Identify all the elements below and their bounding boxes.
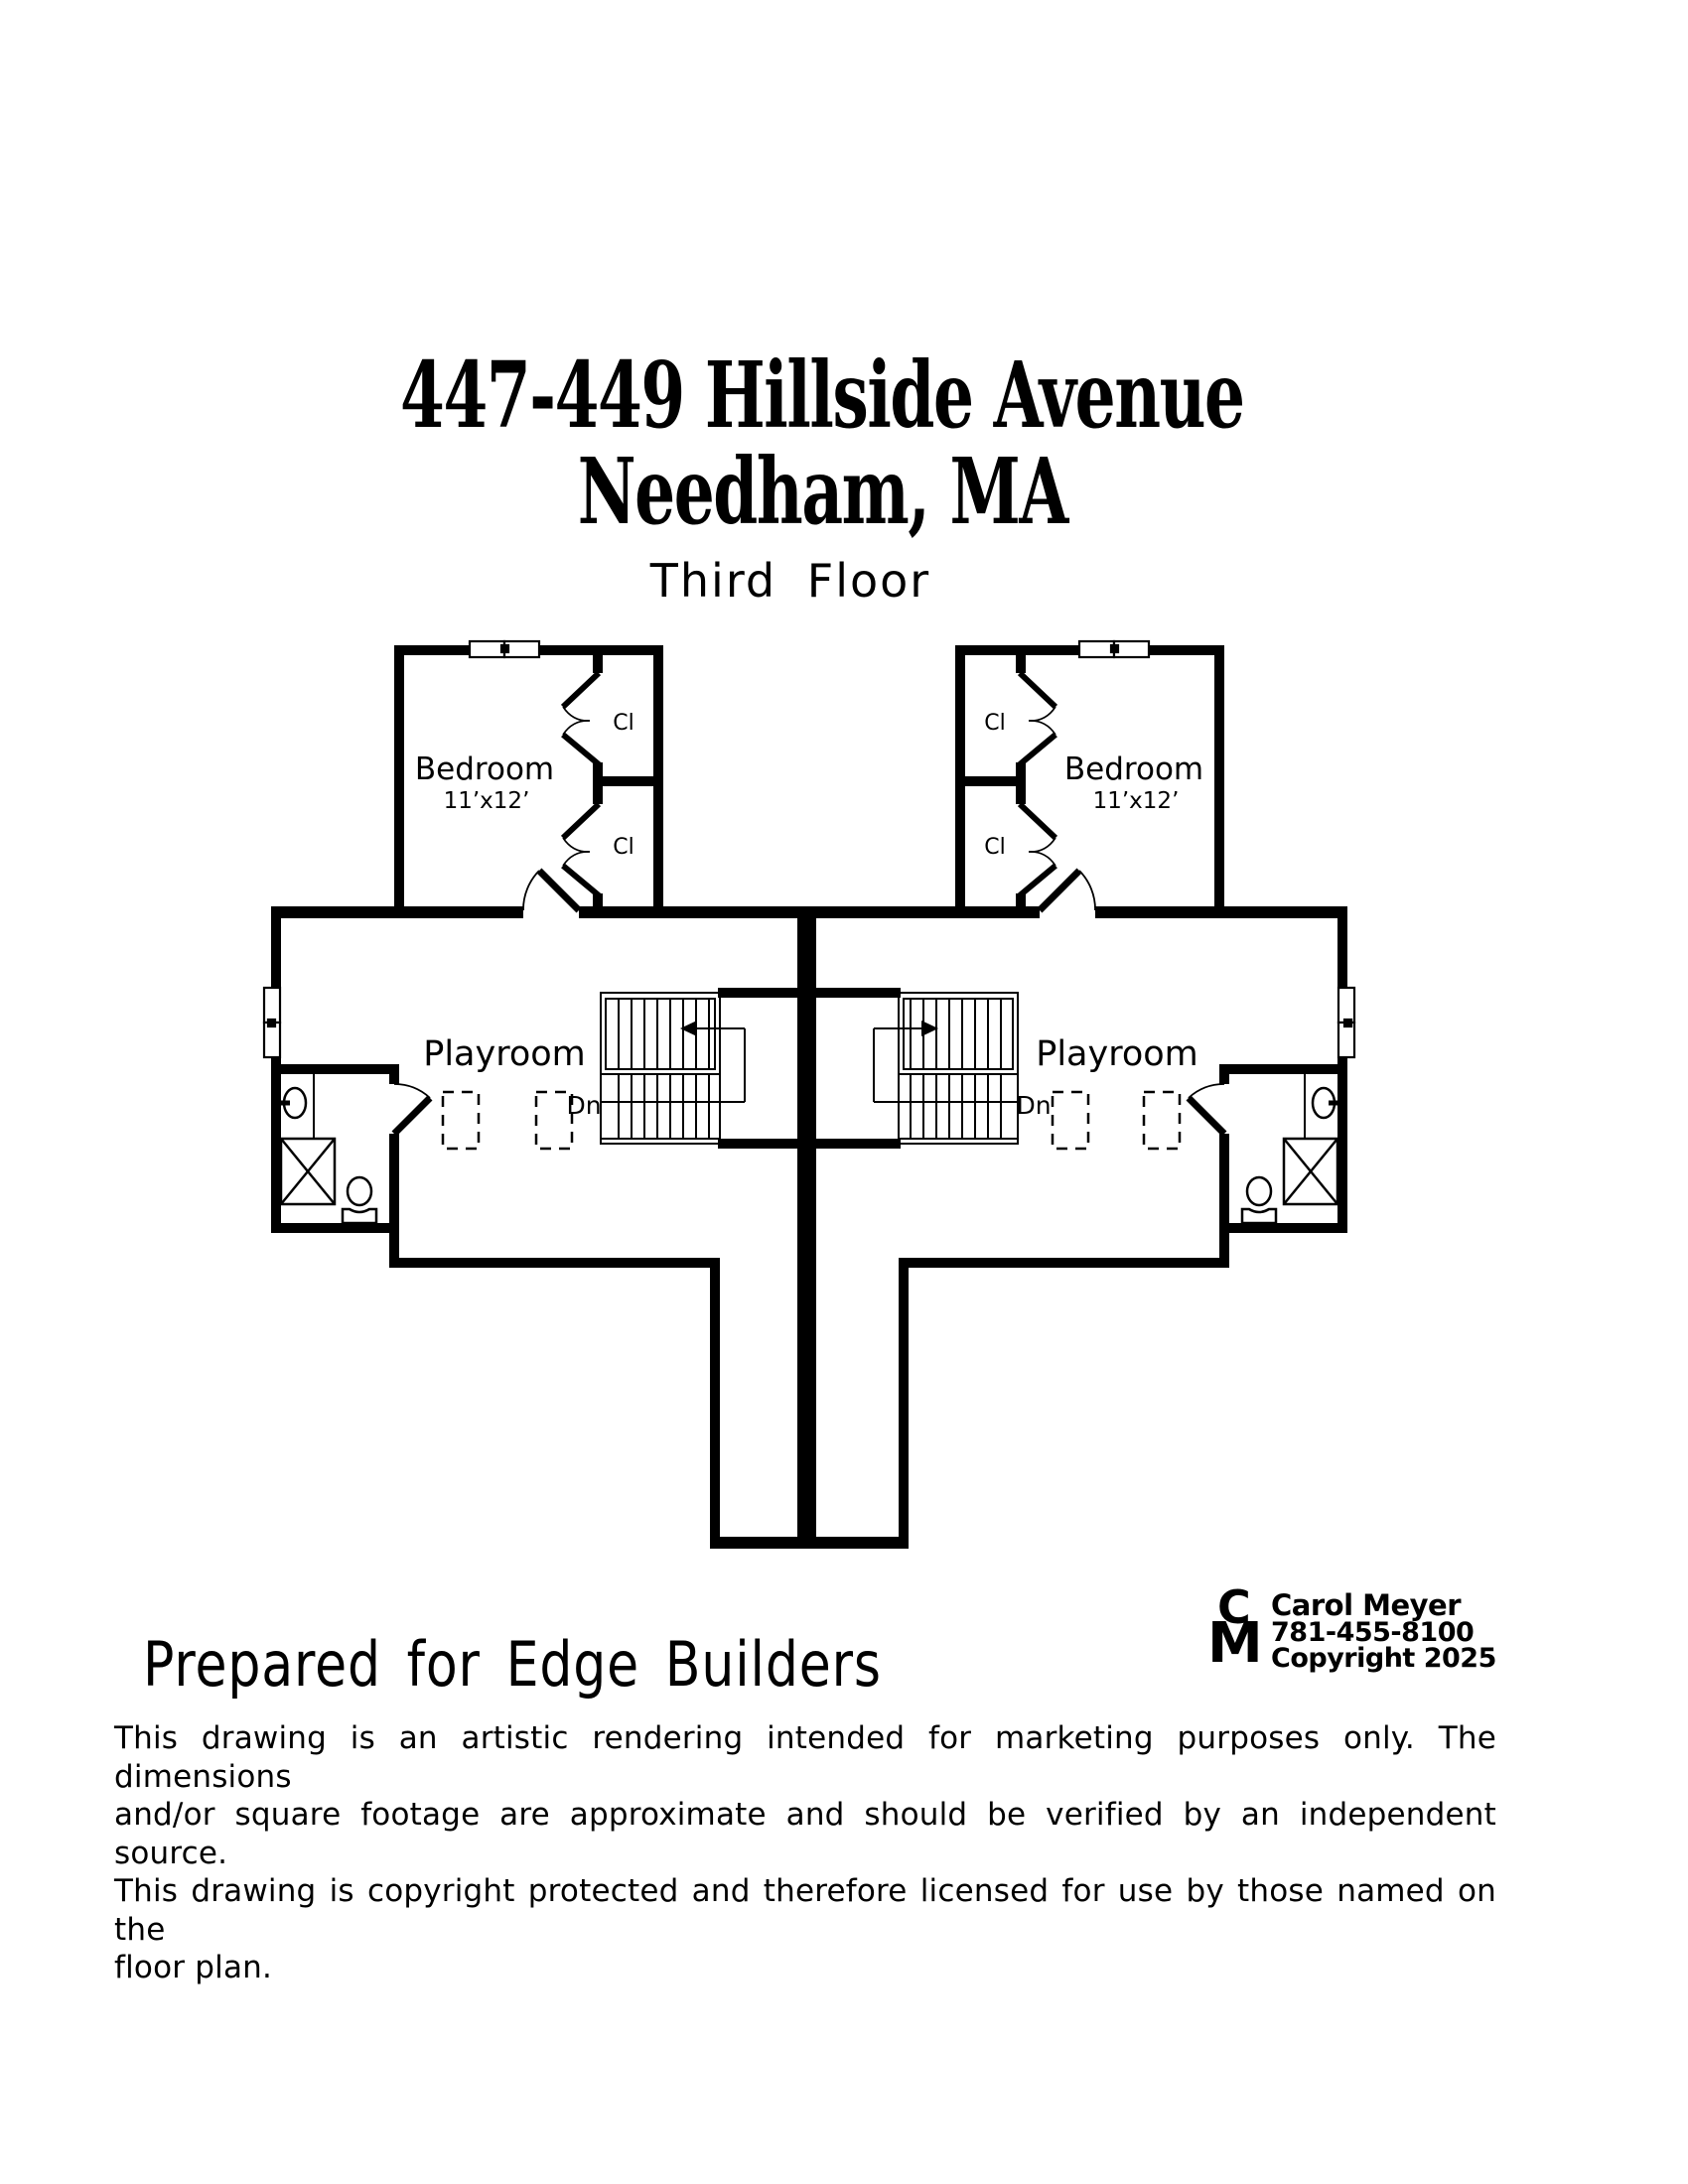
- left-bath-bottom-wall: [271, 1223, 399, 1233]
- party-wall: [797, 906, 816, 1549]
- left-stairs: [601, 993, 745, 1144]
- wall-top-right-seg: [1095, 906, 1347, 918]
- right-bedroom-window-icon: [1079, 641, 1149, 657]
- right-bedroom-right-wall: [1214, 645, 1224, 906]
- disclaimer-line-1: This drawing is an artistic rendering in…: [114, 1719, 1496, 1796]
- right-bedroom-door-icon: [1040, 871, 1095, 910]
- left-bath-side-wall: [389, 1134, 399, 1268]
- right-closet-wall-stub3: [1016, 786, 1026, 804]
- right-stair-down-arrow-icon: [874, 1021, 938, 1036]
- right-shaft-wall: [899, 1258, 909, 1549]
- right-closet-bifold-bottom-icon: [1020, 804, 1055, 895]
- left-stair-bottom-wall: [718, 1139, 806, 1149]
- right-down-label: Dn: [1016, 1091, 1051, 1120]
- left-closet-wall-stub3: [593, 786, 603, 804]
- left-down-label: Dn: [566, 1091, 601, 1120]
- left-stair-down-arrow-icon: [680, 1021, 745, 1036]
- left-bath-top-wall: [271, 1064, 399, 1074]
- designer-name: Carol Meyer: [1271, 1590, 1496, 1620]
- right-bath-side-wall: [1219, 1134, 1229, 1268]
- disclaimer-line-4: floor plan.: [114, 1949, 1496, 1987]
- copyright-text: Copyright 2025: [1271, 1646, 1496, 1672]
- right-stairs: [874, 993, 1018, 1144]
- disclaimer-paragraph: This drawing is an artistic rendering in…: [114, 1719, 1496, 1987]
- left-toilet-icon: [343, 1177, 376, 1223]
- left-shower-icon: [281, 1139, 335, 1204]
- left-dashed-marker-1: [443, 1092, 479, 1149]
- disclaimer-line-3: This drawing is copyright protected and …: [114, 1872, 1496, 1949]
- right-closet-bottom-label: Cl: [984, 835, 1005, 860]
- bottom-wall-left: [389, 1258, 720, 1268]
- left-bath-door-wall-stub: [389, 1064, 399, 1084]
- left-closet-bifold-bottom-icon: [563, 804, 599, 895]
- left-bedroom-label: Bedroom: [415, 751, 554, 787]
- right-closet-top-label: Cl: [984, 711, 1005, 736]
- right-closet-divider: [955, 776, 1026, 786]
- left-closet-divider: [593, 776, 663, 786]
- floor-plan-page: 447-449 Hillside Avenue Needham, MA Thir…: [0, 0, 1688, 2184]
- right-bedroom-left-wall: [955, 645, 965, 906]
- right-bath-top-wall: [1219, 1064, 1347, 1074]
- right-bath-door-wall-stub: [1219, 1064, 1229, 1084]
- left-stair-top-wall: [718, 988, 806, 998]
- left-bedroom-right-wall: [653, 645, 663, 906]
- logo-monogram: C M: [1207, 1584, 1265, 1672]
- right-shaft-cap: [797, 1537, 909, 1549]
- right-stair-bottom-wall: [812, 1139, 901, 1149]
- right-shower-icon: [1284, 1139, 1337, 1204]
- left-closet-wall-stub1: [593, 645, 603, 673]
- right-bathroom-door-icon: [1189, 1084, 1224, 1134]
- prepared-for-text: Prepared for Edge Builders: [143, 1628, 882, 1701]
- left-bedroom-left-wall: [394, 645, 404, 906]
- left-bedroom-window-icon: [470, 641, 539, 657]
- left-closet-bifold-top-icon: [563, 673, 599, 764]
- right-closet-bifold-top-icon: [1020, 673, 1055, 764]
- right-bathroom-fixtures: [1242, 1074, 1341, 1223]
- right-bedroom-dims: 11’x12’: [1093, 788, 1180, 814]
- left-bedroom-dims: 11’x12’: [444, 788, 530, 814]
- disclaimer-line-2: and/or square footage are approximate an…: [114, 1796, 1496, 1872]
- right-sink-icon: [1313, 1088, 1341, 1118]
- left-bathroom-fixtures: [277, 1074, 376, 1223]
- left-closet-top-label: Cl: [613, 711, 633, 736]
- left-closet-bottom-label: Cl: [613, 835, 633, 860]
- right-dashed-marker-2: [1144, 1092, 1180, 1149]
- right-side-window-icon: [1338, 988, 1354, 1057]
- left-sink-icon: [277, 1088, 306, 1118]
- right-stair-top-wall: [812, 988, 901, 998]
- right-bath-bottom-wall: [1219, 1223, 1347, 1233]
- left-side-window-icon: [264, 988, 280, 1057]
- logo-initial-m: M: [1207, 1616, 1265, 1672]
- right-playroom-label: Playroom: [1036, 1034, 1198, 1074]
- wall-top-left-seg: [271, 906, 523, 918]
- bottom-wall-right: [899, 1258, 1229, 1268]
- left-shaft-wall: [710, 1258, 720, 1549]
- left-bathroom-door-icon: [394, 1084, 430, 1134]
- logo-text-column: Carol Meyer 781-455-8100 Copyright 2025: [1271, 1590, 1496, 1672]
- left-playroom-label: Playroom: [423, 1034, 586, 1074]
- left-bedroom-door-icon: [523, 871, 579, 910]
- right-dashed-marker-1: [1053, 1092, 1088, 1149]
- right-bedroom-label: Bedroom: [1064, 751, 1203, 787]
- right-closet-wall-stub1: [1016, 645, 1026, 673]
- right-toilet-icon: [1242, 1177, 1276, 1223]
